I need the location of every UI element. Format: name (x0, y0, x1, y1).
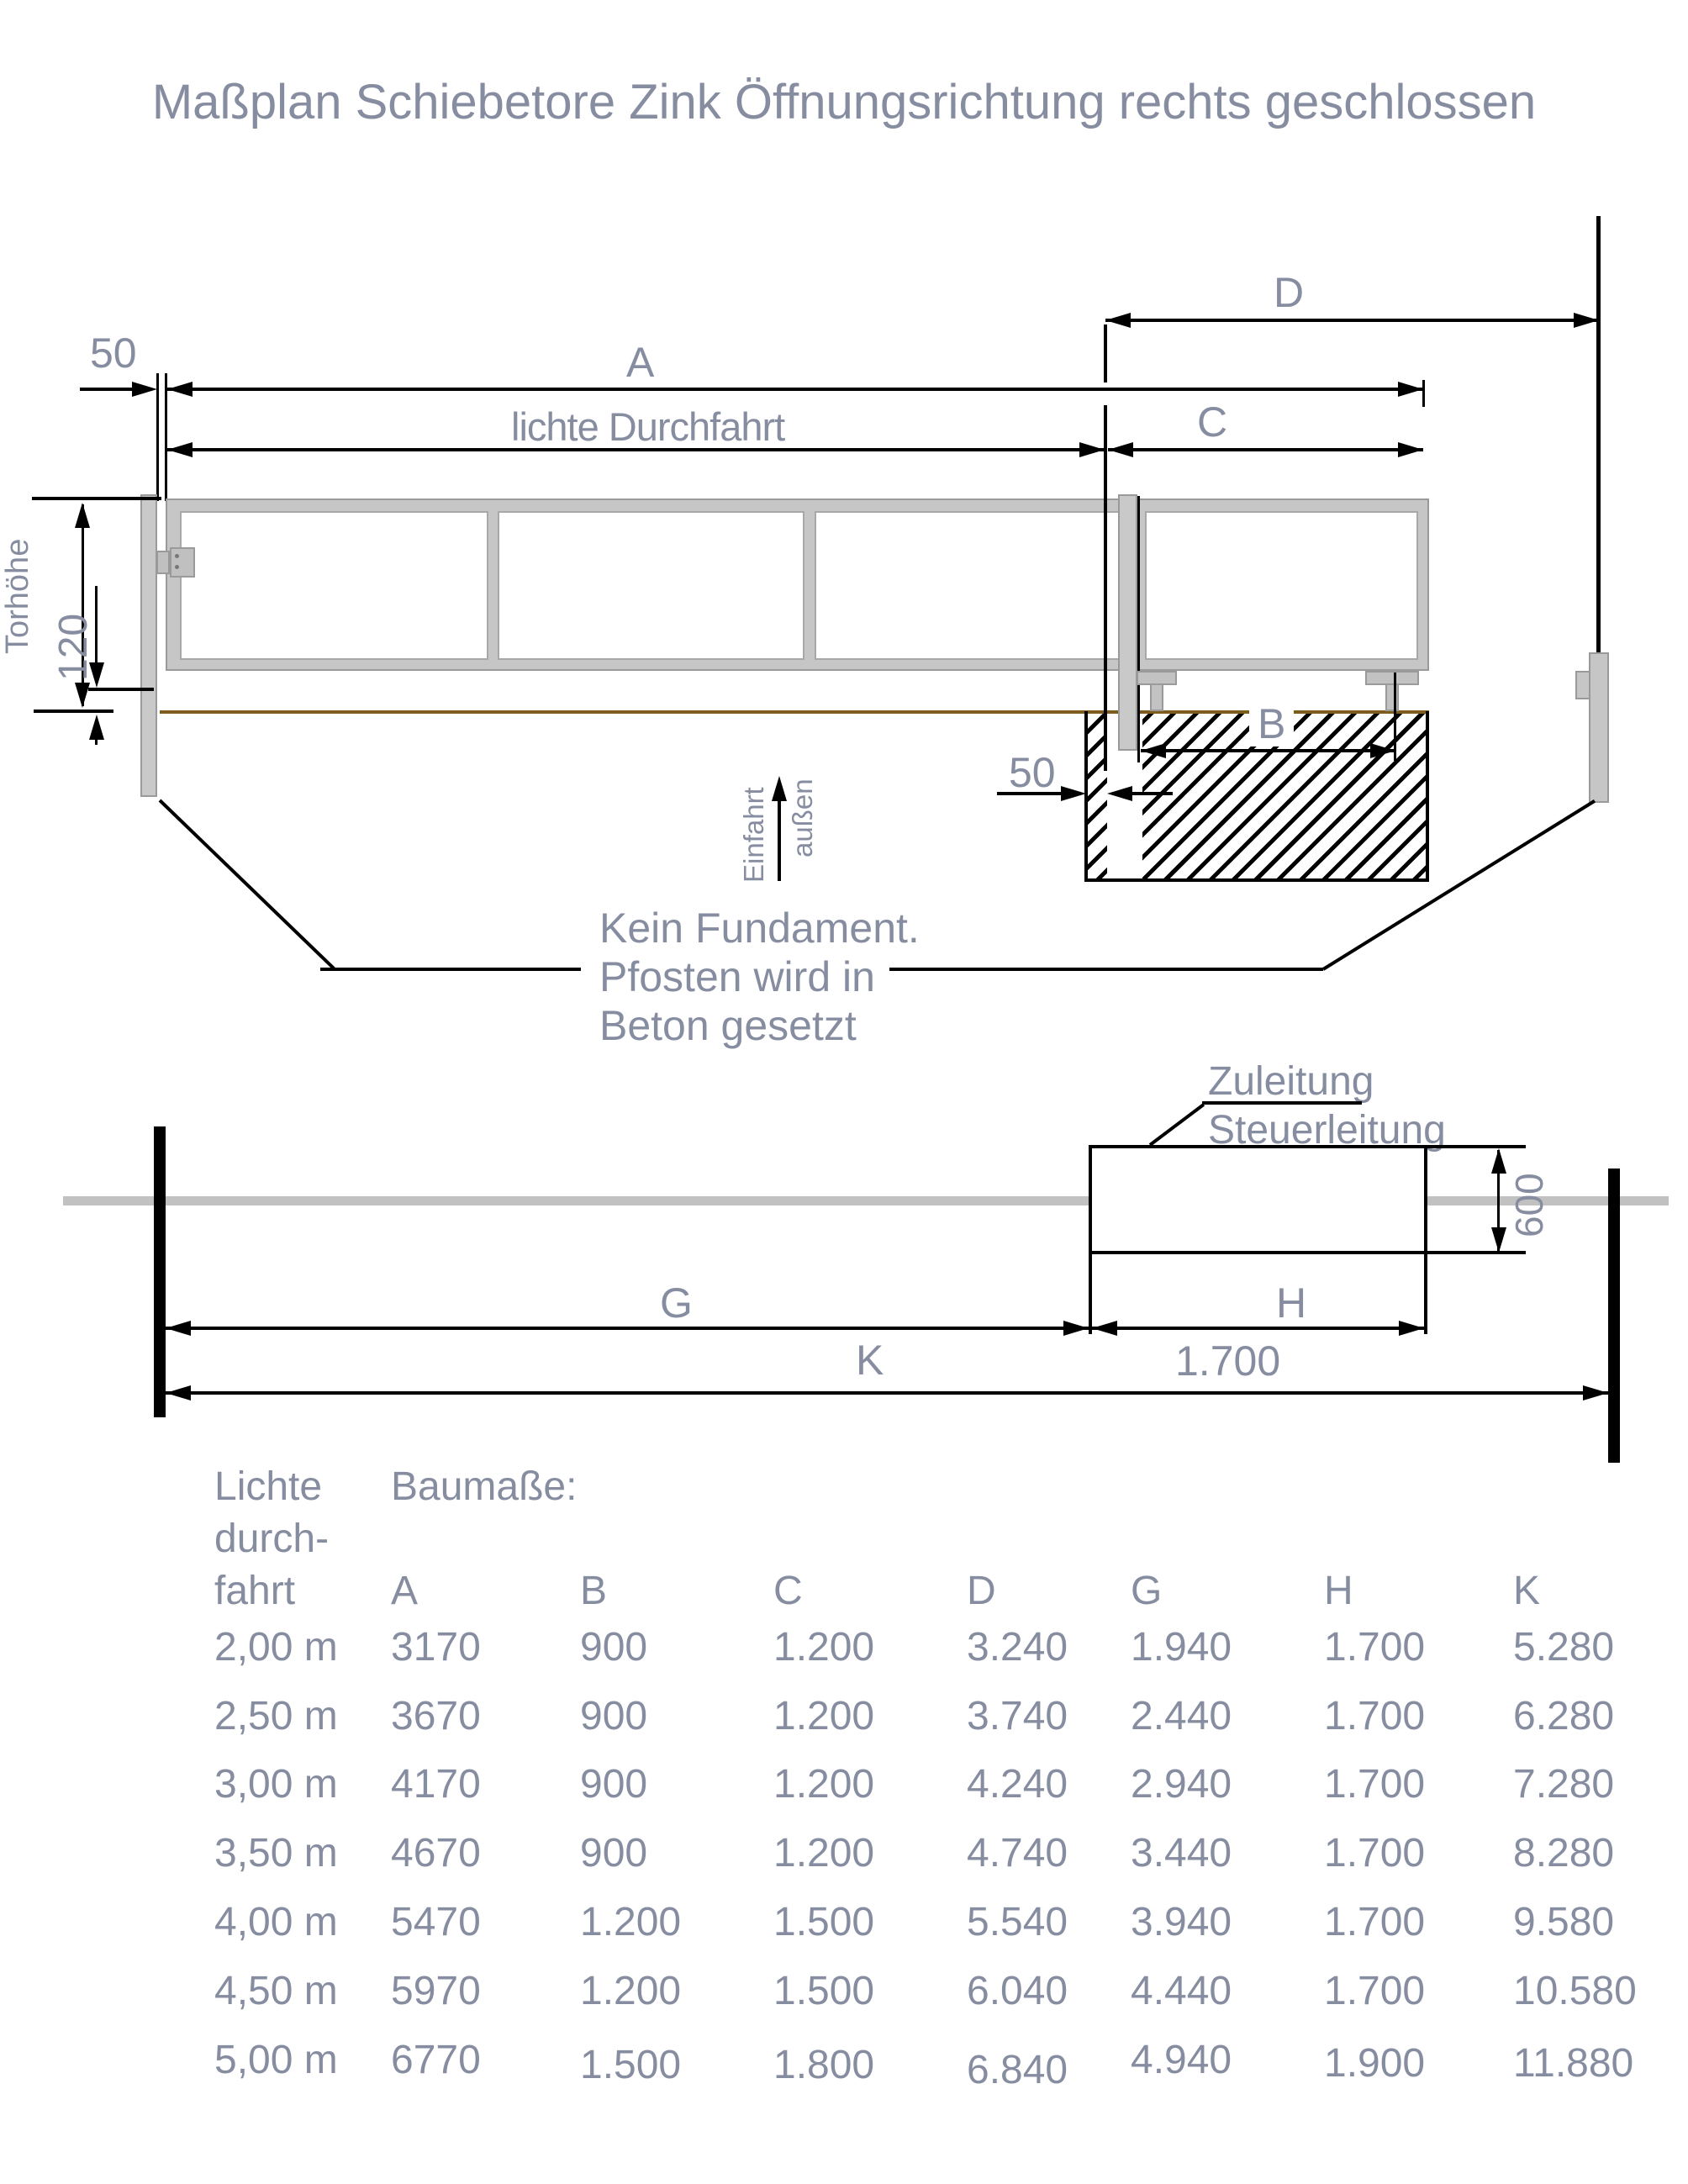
table-row-cell: 4670 (391, 1833, 481, 1875)
direction-arrow-line (778, 799, 781, 881)
arrowhead-c-right-icon (1398, 442, 1423, 457)
label-einfahrt: Einfahrt (740, 790, 768, 883)
table-row-cell: 1.700 (1324, 1764, 1425, 1806)
fence-track-line (63, 1196, 1669, 1205)
table-row-cell: 1.200 (773, 1627, 874, 1669)
table-row-cell: 8.280 (1513, 1833, 1614, 1875)
dim-label-c: C (1197, 400, 1227, 445)
table-row-cell: 1.700 (1324, 1696, 1425, 1738)
callout-horizontal-right (889, 968, 1323, 971)
arrowhead-600-up-icon (1491, 1148, 1506, 1174)
note-line-2: Pfosten wird in (599, 955, 875, 1000)
plan-left-post (154, 1126, 166, 1417)
arrowhead-b-left-icon (1141, 743, 1166, 758)
callout-horizontal-left (320, 968, 581, 971)
rect-top-extension (1427, 1145, 1526, 1148)
dim-label-50-foundation: 50 (1009, 751, 1056, 795)
receiver-post (1589, 652, 1609, 803)
zuleitung-underline (1202, 1101, 1362, 1105)
extension-line-a-right (1422, 380, 1425, 407)
arrowhead-g-left-icon (166, 1321, 191, 1336)
table-row-cell: 4.940 (1131, 2039, 1232, 2081)
table-row-cell: 3.740 (967, 1696, 1068, 1738)
tick-ground-left (34, 710, 113, 713)
lock-hinge-plate (156, 551, 170, 574)
arrowhead-50f-left-icon (1107, 786, 1132, 801)
lock-box (170, 547, 195, 578)
table-row-cell: 7.280 (1513, 1764, 1614, 1806)
table-col-header-k: K (1513, 1570, 1540, 1612)
table-row-cell: 6.280 (1513, 1696, 1614, 1738)
dim-line-g (166, 1327, 1089, 1330)
table-row-cell: 1.500 (580, 2044, 681, 2086)
dim-line-k (166, 1391, 1608, 1395)
arrowhead-lichte-right-icon (1079, 442, 1105, 457)
label-aussen: außen (789, 783, 816, 857)
dim-label-600: 600 (1510, 1170, 1548, 1237)
arrowhead-g-right-icon (1063, 1321, 1089, 1336)
arrowhead-h-right-icon (1399, 1321, 1424, 1336)
table-row-cell: 5970 (391, 1970, 481, 2013)
left-post (140, 494, 157, 797)
arrowhead-h-left-icon (1092, 1321, 1117, 1336)
dim-label-d: D (1274, 271, 1304, 315)
table-col1-header-line3: fahrt (214, 1570, 295, 1612)
dim-value-h: 1.700 (1175, 1339, 1280, 1384)
arrowhead-a-left-icon (167, 382, 193, 397)
table-row-cell: 3.240 (967, 1627, 1068, 1669)
gate-foot-right-stem (1385, 683, 1399, 711)
table-group-header: Baumaße: (391, 1466, 577, 1508)
gate-panel-3 (815, 511, 1121, 660)
note-line-3: Beton gesetzt (599, 1004, 857, 1048)
arrowhead-lichte-left-icon (167, 442, 193, 457)
table-row-cell: 4,00 m (214, 1902, 338, 1944)
dim-line-a (167, 388, 1423, 391)
table-row-cell: 2.440 (1131, 1696, 1232, 1738)
foundation-right-edge (1426, 711, 1429, 882)
zuleitung-diagonal (1149, 1103, 1205, 1146)
dim-line-120-upper (95, 586, 98, 666)
table-row-cell: 6.040 (967, 1970, 1068, 2013)
table-col-header-d: D (967, 1570, 996, 1612)
dim-label-b: B (1249, 702, 1294, 746)
dim-line-50-top (80, 388, 134, 391)
arrowhead-b-right-icon (1370, 743, 1395, 758)
table-col1-header-line2: durch- (214, 1518, 329, 1560)
dim-label-torhoehe: Torhöhe (2, 545, 34, 654)
dim-label-k: K (856, 1338, 884, 1383)
table-row-cell: 900 (580, 1833, 647, 1875)
table-row-cell: 1.700 (1324, 1833, 1425, 1875)
table-col1-header-line1: Lichte (214, 1466, 322, 1508)
table-row-cell: 5470 (391, 1902, 481, 1944)
dim-line-120-lower (95, 730, 98, 745)
table-row-cell: 5.280 (1513, 1627, 1614, 1669)
arrowhead-d-right-icon (1574, 313, 1599, 328)
arrowhead-a-right-icon (1398, 382, 1423, 397)
table-row-cell: 5.540 (967, 1902, 1068, 1944)
table-col-header-h: H (1324, 1570, 1353, 1612)
table-row-cell: 1.500 (773, 1902, 874, 1944)
table-row-cell: 10.580 (1513, 1970, 1637, 2013)
table-row-cell: 2.940 (1131, 1764, 1232, 1806)
foundation-bottom-edge (1084, 878, 1429, 882)
dim-line-50-foundation-left (997, 792, 1063, 795)
arrowhead-k-left-icon (166, 1385, 191, 1401)
table-row-cell: 2,00 m (214, 1627, 338, 1669)
callout-diagonal-left (159, 799, 335, 970)
arrowhead-120-down-icon (89, 662, 104, 688)
dimension-plan-sheet: Maßplan Schiebetore Zink Öffnungsrichtun… (0, 0, 1688, 2184)
page-title: Maßplan Schiebetore Zink Öffnungsrichtun… (0, 77, 1688, 129)
reference-line-right (1596, 216, 1601, 652)
extension-line-d (1104, 324, 1107, 382)
table-row-cell: 900 (580, 1764, 647, 1806)
table-row-cell: 2,50 m (214, 1696, 338, 1738)
table-row-cell: 4,50 m (214, 1970, 338, 2013)
arrowhead-d-left-icon (1105, 313, 1131, 328)
dim-label-a: A (626, 340, 654, 385)
table-row-cell: 4.240 (967, 1764, 1068, 1806)
gate-panel-2 (498, 511, 804, 660)
tick-gate-bottom (88, 688, 154, 691)
table-row-cell: 1.200 (773, 1833, 874, 1875)
table-row-cell: 1.200 (580, 1970, 681, 2013)
arrowhead-torhoehe-top-icon (75, 503, 90, 528)
dim-line-b (1141, 749, 1395, 752)
table-row-cell: 900 (580, 1696, 647, 1738)
lock-screw-bottom-icon (175, 565, 179, 569)
table-row-cell: 1.900 (1324, 2043, 1425, 2085)
dim-label-g: G (660, 1281, 693, 1326)
table-row-cell: 4.440 (1131, 1970, 1232, 2013)
gate-panel-4 (1145, 511, 1418, 660)
table-row-cell: 1.700 (1324, 1970, 1425, 2013)
table-row-cell: 1.800 (773, 2044, 874, 2086)
table-row-cell: 900 (580, 1627, 647, 1669)
arrowhead-k-right-icon (1583, 1385, 1608, 1401)
table-row-cell: 1.940 (1131, 1627, 1232, 1669)
sliding-guide-post (1118, 494, 1137, 751)
dim-label-h: H (1276, 1281, 1306, 1326)
gate-foot-left-stem (1150, 683, 1163, 711)
arrowhead-c-left-icon (1108, 442, 1133, 457)
dim-line-50-foundation-right (1131, 792, 1173, 795)
table-row-cell: 11.880 (1513, 2043, 1633, 2085)
table-col-header-c: C (773, 1570, 803, 1612)
table-row-cell: 1.200 (773, 1764, 874, 1806)
arrowhead-50f-right-icon (1061, 786, 1086, 801)
table-row-cell: 4.740 (967, 1833, 1068, 1875)
table-row-cell: 9.580 (1513, 1902, 1614, 1944)
table-row-cell: 1.700 (1324, 1627, 1425, 1669)
arrowhead-600-down-icon (1491, 1227, 1506, 1253)
table-row-cell: 6.840 (967, 2049, 1068, 2092)
dim-line-c (1108, 448, 1423, 451)
arrowhead-torhoehe-bottom-icon (75, 683, 90, 708)
post-right-edge-line (1137, 496, 1140, 762)
table-col-header-a: A (391, 1570, 418, 1612)
rect-bottom-extension (1427, 1251, 1526, 1254)
table-row-cell: 1.500 (773, 1970, 874, 2013)
plan-right-post (1608, 1168, 1620, 1463)
table-row-cell: 6770 (391, 2039, 481, 2081)
table-row-cell: 5,00 m (214, 2039, 338, 2081)
dim-line-d (1105, 319, 1599, 322)
dim-label-lichte-durchfahrt: lichte Durchfahrt (511, 406, 784, 447)
label-zuleitung: Zuleitung (1208, 1061, 1374, 1103)
gate-panel-1 (180, 511, 488, 660)
dim-line-h (1092, 1327, 1424, 1330)
dim-label-50-top: 50 (90, 331, 137, 376)
table-row-cell: 4170 (391, 1764, 481, 1806)
drive-foundation-rect (1089, 1145, 1427, 1254)
table-row-cell: 3,50 m (214, 1833, 338, 1875)
table-row-cell: 3.440 (1131, 1833, 1232, 1875)
dim-line-lichte (167, 448, 1105, 451)
table-col-header-g: G (1131, 1570, 1162, 1612)
lock-screw-top-icon (175, 554, 179, 558)
dim-label-120: 120 (54, 614, 94, 681)
table-row-cell: 1.700 (1324, 1902, 1425, 1944)
table-row-cell: 1.200 (580, 1902, 681, 1944)
table-row-cell: 1.200 (773, 1696, 874, 1738)
arrowhead-50-top-icon (132, 382, 157, 397)
tick-gate-top (32, 497, 161, 500)
table-row-cell: 3,00 m (214, 1764, 338, 1806)
extension-line-post-edge (156, 373, 159, 501)
rect-right-extension (1424, 1254, 1427, 1334)
table-col-header-b: B (580, 1570, 607, 1612)
clear-passage-edge-line (1104, 405, 1107, 771)
direction-arrow-up-icon (772, 776, 787, 801)
table-row-cell: 3670 (391, 1696, 481, 1738)
note-line-1: Kein Fundament. (599, 906, 920, 951)
table-row-cell: 3.940 (1131, 1902, 1232, 1944)
table-row-cell: 3170 (391, 1627, 481, 1669)
